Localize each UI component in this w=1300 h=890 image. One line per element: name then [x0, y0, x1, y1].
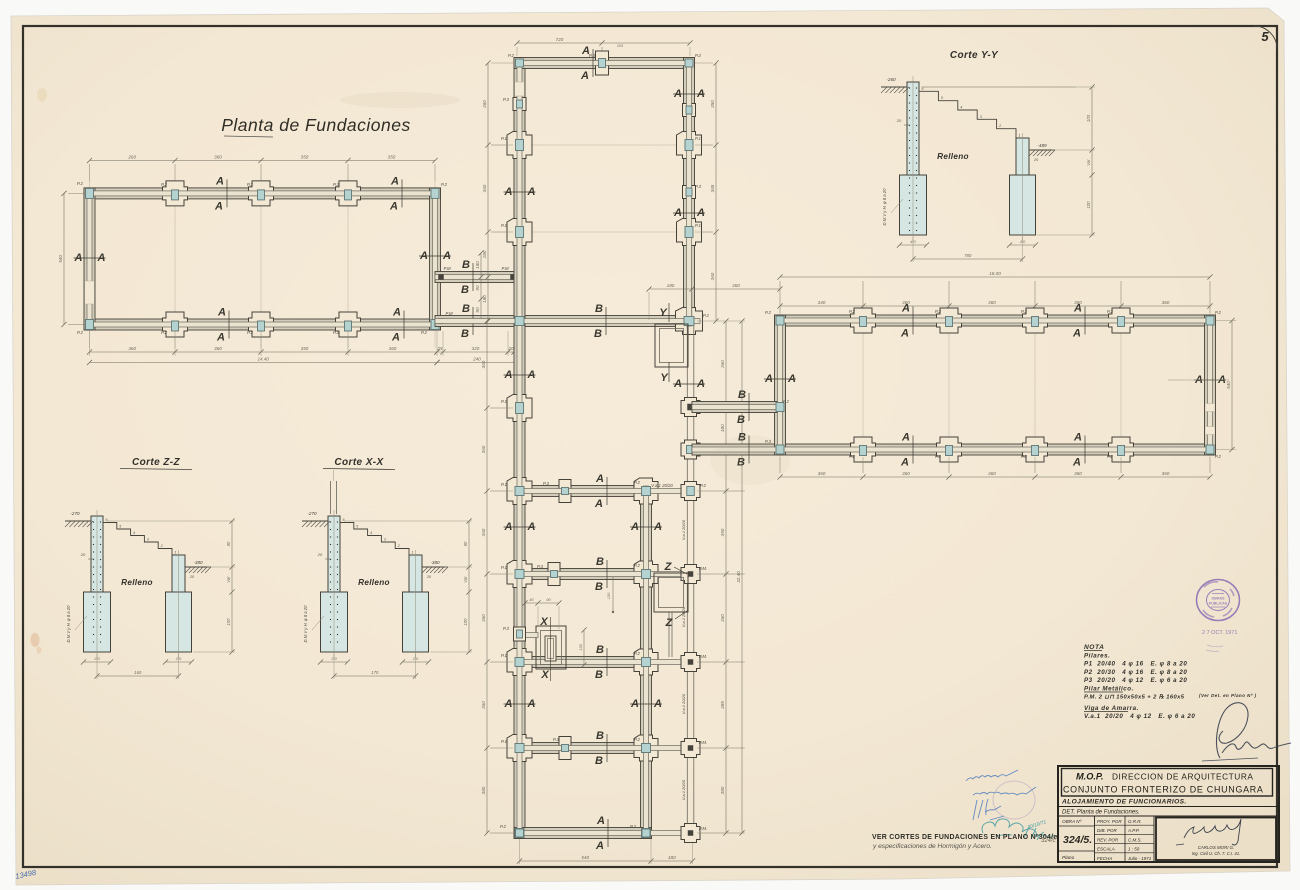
- svg-text:180: 180: [720, 424, 725, 432]
- svg-text:P.1: P.1: [501, 653, 508, 658]
- svg-text:V.a.1 20/20: V.a.1 20/20: [681, 519, 686, 540]
- svg-text:2: 2: [397, 544, 400, 548]
- svg-text:B: B: [595, 581, 603, 593]
- svg-text:B: B: [461, 284, 469, 296]
- svg-text:A: A: [504, 698, 513, 710]
- svg-text:P.M. 2 ⊔⊓ 150x50x5 + 2 ℞ 160x5: P.M. 2 ⊔⊓ 150x50x5 + 2 ℞ 160x5: [1084, 694, 1185, 701]
- svg-text:5: 5: [119, 525, 121, 529]
- svg-text:B: B: [596, 644, 604, 656]
- svg-text:350: 350: [720, 528, 725, 536]
- svg-text:B: B: [595, 755, 603, 767]
- svg-text:B: B: [596, 556, 604, 568]
- svg-text:P.2: P.2: [935, 309, 942, 314]
- svg-text:20: 20: [426, 575, 432, 579]
- svg-text:350: 350: [710, 100, 715, 108]
- svg-text:P.M: P.M: [443, 266, 451, 271]
- svg-text:320: 320: [472, 346, 480, 351]
- svg-text:P.1: P.1: [501, 136, 508, 141]
- svg-text:P.2: P.2: [333, 182, 340, 187]
- svg-text:540: 540: [581, 855, 589, 860]
- svg-text:385: 385: [720, 701, 725, 709]
- svg-text:A: A: [390, 175, 399, 187]
- svg-text:P.2: P.2: [630, 824, 637, 829]
- svg-text:DET. Planta de Fundaciones.: DET. Planta de Fundaciones.: [1062, 810, 1140, 816]
- svg-text:P.2: P.2: [161, 182, 168, 187]
- svg-text:20: 20: [1033, 158, 1039, 162]
- svg-text:B: B: [461, 328, 469, 340]
- svg-text:A: A: [1073, 303, 1082, 315]
- svg-text:P.M.: P.M.: [699, 826, 707, 831]
- svg-text:6: 6: [106, 518, 108, 522]
- svg-text:ESCALA: ESCALA: [1097, 847, 1115, 852]
- svg-text:360: 360: [818, 471, 826, 476]
- svg-text:FECHA: FECHA: [1097, 856, 1112, 861]
- svg-text:P.2: P.2: [700, 483, 707, 488]
- svg-text:P.M.: P.M.: [699, 566, 707, 571]
- svg-text:y especificaciones de Hormigón: y especificaciones de Hormigón y Acero.: [872, 843, 992, 850]
- svg-text:2: 2: [160, 544, 163, 548]
- svg-text:4: 4: [960, 106, 962, 110]
- svg-text:Plano: Plano: [1062, 855, 1075, 861]
- svg-text:P.3: P.3: [503, 97, 510, 102]
- svg-text:PROY. POR: PROY. POR: [1097, 819, 1122, 824]
- svg-text:P.2: P.2: [508, 53, 515, 58]
- svg-text:360: 360: [128, 346, 136, 351]
- svg-text:B: B: [462, 303, 470, 315]
- svg-text:P.M.: P.M.: [699, 740, 707, 745]
- svg-text:P.2: P.2: [77, 330, 84, 335]
- svg-text:360: 360: [481, 614, 486, 622]
- svg-text:A: A: [900, 328, 909, 340]
- svg-text:P.2: P.2: [247, 182, 254, 187]
- svg-text:P.2: P.2: [500, 824, 507, 829]
- svg-text:1: 1: [412, 551, 414, 555]
- svg-text:350: 350: [301, 154, 309, 159]
- svg-text:B: B: [595, 303, 603, 315]
- svg-text:REV. POR: REV. POR: [1097, 837, 1119, 842]
- svg-text:P.3: P.3: [537, 564, 544, 569]
- svg-text:14.40: 14.40: [257, 356, 269, 361]
- svg-text:P.2: P.2: [161, 330, 168, 335]
- svg-text:A: A: [419, 250, 428, 262]
- svg-text:A: A: [215, 175, 224, 187]
- svg-text:-260: -260: [886, 77, 896, 82]
- svg-text:P.2: P.2: [634, 480, 641, 485]
- svg-text:360: 360: [732, 283, 740, 288]
- svg-text:360: 360: [710, 272, 715, 280]
- svg-text:A: A: [504, 186, 513, 198]
- svg-text:120: 120: [606, 592, 611, 599]
- svg-text:B: B: [738, 389, 746, 401]
- svg-text:A: A: [527, 698, 536, 710]
- svg-text:Viga de Amarra.: Viga de Amarra.: [1084, 705, 1139, 712]
- svg-text:2 7 OCT. 1971: 2 7 OCT. 1971: [1202, 630, 1237, 636]
- svg-text:324/с: 324/с: [1041, 838, 1056, 844]
- svg-text:D.M.V y H. φ 8 a 20: D.M.V y H. φ 8 a 20: [66, 605, 71, 643]
- svg-text:P.1: P.1: [501, 399, 508, 404]
- svg-text:A: A: [900, 457, 909, 469]
- svg-text:A: A: [527, 186, 536, 198]
- svg-text:3: 3: [384, 538, 386, 542]
- svg-text:P.2: P.2: [77, 181, 84, 186]
- svg-text:90: 90: [475, 285, 480, 291]
- svg-text:324/5.: 324/5.: [1063, 834, 1092, 846]
- svg-text:2: 2: [998, 124, 1001, 128]
- svg-text:DIB. POR: DIB. POR: [1097, 828, 1118, 833]
- svg-text:20: 20: [80, 552, 86, 557]
- svg-text:A: A: [504, 521, 513, 533]
- svg-text:360: 360: [482, 184, 487, 192]
- svg-text:P.2: P.2: [333, 330, 340, 335]
- svg-text:780: 780: [964, 253, 972, 258]
- svg-text:A: A: [216, 332, 225, 344]
- svg-text:360: 360: [481, 360, 486, 368]
- svg-text:160: 160: [134, 670, 142, 675]
- svg-text:A: A: [74, 252, 83, 264]
- svg-text:A: A: [696, 88, 705, 100]
- svg-text:A: A: [97, 252, 106, 264]
- svg-text:360: 360: [482, 100, 487, 108]
- svg-text:B: B: [737, 414, 745, 426]
- svg-text:X: X: [540, 669, 549, 681]
- svg-text:20: 20: [189, 575, 195, 579]
- svg-text:P.2: P.2: [935, 454, 942, 459]
- svg-text:B: B: [462, 259, 470, 271]
- svg-text:Var: Var: [463, 576, 468, 583]
- svg-text:Var: Var: [226, 576, 231, 583]
- svg-text:18.00: 18.00: [989, 271, 1001, 276]
- svg-text:90: 90: [463, 541, 468, 546]
- svg-text:240: 240: [472, 356, 481, 361]
- svg-text:365: 365: [710, 184, 715, 192]
- svg-text:OBRA Nº: OBRA Nº: [1062, 819, 1081, 824]
- svg-text:A: A: [630, 698, 639, 710]
- svg-text:G.R.R.: G.R.R.: [1128, 819, 1142, 824]
- svg-text:A: A: [673, 207, 682, 219]
- svg-text:A: A: [527, 521, 536, 533]
- svg-text:D.M.V y H. φ 8 a 20: D.M.V y H. φ 8 a 20: [882, 188, 887, 226]
- svg-text:A: A: [653, 521, 662, 533]
- svg-text:A: A: [1072, 328, 1081, 340]
- svg-text:-270: -270: [307, 511, 317, 516]
- svg-text:P.2: P.2: [703, 313, 710, 318]
- svg-text:CARLOS MORI G.: CARLOS MORI G.: [1198, 845, 1235, 850]
- svg-text:32.40: 32.40: [736, 571, 741, 583]
- svg-text:360: 360: [988, 471, 996, 476]
- svg-text:Pilar Metálico.: Pilar Metálico.: [1084, 686, 1134, 693]
- svg-text:A: A: [580, 70, 589, 82]
- svg-text:Corte Y-Y: Corte Y-Y: [950, 50, 999, 61]
- svg-text:A: A: [696, 207, 705, 219]
- svg-text:OBRAS: OBRAS: [1212, 597, 1226, 601]
- svg-text:P.1: P.1: [695, 223, 702, 228]
- svg-text:V.a.1 20/20: V.a.1 20/20: [681, 779, 686, 800]
- svg-text:100: 100: [1086, 201, 1091, 209]
- svg-text:360: 360: [1162, 471, 1170, 476]
- svg-text:P.2: P.2: [849, 309, 856, 314]
- svg-text:Julio - 1971: Julio - 1971: [1127, 856, 1152, 861]
- svg-text:90: 90: [226, 541, 231, 546]
- svg-text:P.M.: P.M.: [699, 654, 707, 659]
- svg-text:A: A: [630, 521, 639, 533]
- svg-text:P.2: P.2: [849, 454, 856, 459]
- svg-text:A: A: [673, 378, 682, 390]
- svg-text:A: A: [581, 45, 590, 57]
- svg-text:P.1: P.1: [501, 739, 508, 744]
- svg-text:A: A: [217, 307, 226, 319]
- svg-text:180: 180: [475, 261, 480, 269]
- svg-text:360: 360: [481, 445, 486, 453]
- svg-text:1: 1: [175, 551, 177, 555]
- svg-text:Z: Z: [665, 617, 674, 629]
- svg-text:P.M: P.M: [445, 311, 453, 316]
- svg-text:A: A: [595, 840, 604, 852]
- svg-text:360: 360: [902, 471, 910, 476]
- svg-text:360: 360: [214, 154, 222, 159]
- svg-text:A.P.P.: A.P.P.: [1127, 828, 1140, 833]
- svg-text:Pilares.: Pilares.: [1084, 653, 1110, 660]
- svg-text:P.3: P.3: [503, 626, 510, 631]
- svg-text:Z: Z: [664, 561, 673, 573]
- svg-text:P2 20/30 4 φ 16 E. φ 8 a: P2 20/30 4 φ 16 E. φ 8 a 20: [1084, 669, 1187, 676]
- svg-text:D.M.V y H. φ 8 a 20: D.M.V y H. φ 8 a 20: [303, 605, 308, 643]
- svg-text:B: B: [596, 730, 604, 742]
- svg-text:3: 3: [147, 538, 149, 542]
- svg-text:A: A: [596, 815, 605, 827]
- svg-text:Corte Z-Z: Corte Z-Z: [132, 457, 181, 468]
- svg-text:B: B: [594, 328, 602, 340]
- svg-text:ALOJAMIENTO DE FUNCIONARIOS.: ALOJAMIENTO DE FUNCIONARIOS.: [1061, 799, 1187, 806]
- svg-text:X: X: [539, 616, 548, 628]
- svg-text:P.3: P.3: [553, 737, 560, 742]
- svg-text:A: A: [391, 332, 400, 344]
- svg-text:V.a.1 20/20: V.a.1 20/20: [651, 483, 673, 488]
- svg-text:Relleno: Relleno: [358, 578, 390, 587]
- svg-text:260: 260: [127, 154, 136, 159]
- svg-text:5: 5: [1261, 29, 1269, 44]
- svg-text:P.2: P.2: [765, 310, 772, 315]
- svg-text:P1 20/40 4 φ 16 E. φ 8 a: P1 20/40 4 φ 16 E. φ 8 a 20: [1084, 661, 1187, 668]
- svg-text:360: 360: [1074, 471, 1082, 476]
- svg-text:Var: Var: [1086, 159, 1091, 166]
- svg-text:A: A: [504, 369, 513, 381]
- svg-text:5: 5: [941, 96, 943, 100]
- svg-text:180: 180: [482, 250, 487, 258]
- svg-text:720: 720: [556, 37, 564, 42]
- svg-text:A: A: [653, 698, 662, 710]
- svg-text:340: 340: [818, 300, 826, 305]
- svg-text:Corte X-X: Corte X-X: [334, 457, 384, 468]
- svg-text:-270: -270: [70, 511, 80, 516]
- svg-text:P.2: P.2: [634, 563, 641, 568]
- svg-text:A: A: [442, 250, 451, 262]
- svg-text:P.2: P.2: [1107, 454, 1114, 459]
- svg-text:A: A: [696, 378, 705, 390]
- svg-text:180: 180: [482, 295, 487, 303]
- svg-text:A: A: [673, 88, 682, 100]
- svg-text:P.1: P.1: [695, 136, 702, 141]
- svg-text:20: 20: [317, 552, 323, 557]
- svg-text:380: 380: [481, 786, 486, 794]
- svg-text:Planta de Fundaciones: Planta de Fundaciones: [221, 115, 411, 135]
- svg-text:M.O.P.: M.O.P.: [1076, 772, 1103, 782]
- svg-text:P.2: P.2: [783, 399, 790, 404]
- svg-text:P.2: P.2: [1215, 310, 1222, 315]
- svg-text:C.M.S.: C.M.S.: [1128, 837, 1142, 842]
- svg-text:DIRECCION DE ARQUITECTURA: DIRECCION DE ARQUITECTURA: [1112, 772, 1253, 782]
- svg-text:A: A: [901, 432, 910, 444]
- svg-text:540: 540: [1226, 381, 1231, 389]
- svg-text:4: 4: [133, 531, 135, 535]
- svg-text:1 : 50: 1 : 50: [1128, 847, 1140, 852]
- svg-text:180: 180: [668, 855, 676, 860]
- svg-text:103: 103: [617, 44, 624, 48]
- svg-text:360: 360: [389, 346, 397, 351]
- svg-text:A: A: [787, 373, 796, 385]
- svg-text:P.3: P.3: [543, 481, 550, 486]
- svg-text:20: 20: [507, 346, 514, 351]
- svg-text:6: 6: [922, 87, 924, 91]
- svg-text:360: 360: [481, 528, 486, 536]
- svg-text:P.2: P.2: [1021, 454, 1028, 459]
- svg-text:P.2: P.2: [1107, 309, 1114, 314]
- svg-text:V.a.1 20/20: V.a.1 20/20: [681, 606, 686, 627]
- svg-text:V.a.1 20/20 4 φ 12 E. φ 6: V.a.1 20/20 4 φ 12 E. φ 6 a 20: [1084, 713, 1195, 720]
- svg-text:6: 6: [343, 518, 345, 522]
- svg-text:20: 20: [896, 118, 902, 123]
- svg-text:CONJUNTO FRONTERIZO DE CHUN: CONJUNTO FRONTERIZO DE CHUNGARA: [1063, 785, 1264, 795]
- svg-text:90: 90: [475, 307, 480, 313]
- svg-text:Relleno: Relleno: [121, 578, 153, 587]
- svg-text:100: 100: [463, 618, 468, 626]
- svg-text:-380: -380: [430, 560, 440, 565]
- svg-text:P.3: P.3: [589, 53, 596, 58]
- svg-text:P.1: P.1: [501, 565, 508, 570]
- svg-text:540: 540: [58, 255, 63, 263]
- svg-text:NOTA: NOTA: [1084, 644, 1104, 651]
- svg-text:103: 103: [1086, 114, 1091, 122]
- svg-text:4.0: 4.0: [1020, 239, 1026, 244]
- svg-text:360: 360: [1162, 300, 1170, 305]
- svg-text:P.1: P.1: [501, 482, 508, 487]
- svg-text:VER CORTES DE FUNDACIONES EN P: VER CORTES DE FUNDACIONES EN PLANO Nº304…: [872, 834, 1058, 841]
- svg-text:V.a.1 20/20: V.a.1 20/20: [681, 693, 686, 714]
- svg-text:P.2: P.2: [1215, 454, 1222, 459]
- svg-text:180: 180: [667, 283, 675, 288]
- svg-text:A: A: [901, 303, 910, 315]
- svg-text:P.2: P.2: [421, 330, 428, 335]
- svg-text:P.2: P.2: [247, 330, 254, 335]
- svg-text:A: A: [595, 473, 604, 485]
- svg-text:A: A: [1073, 432, 1082, 444]
- svg-text:-380: -380: [193, 560, 203, 565]
- svg-text:(Ver Det. en Plano Nº ): (Ver Det. en Plano Nº ): [1199, 693, 1257, 698]
- svg-text:Relleno: Relleno: [937, 152, 969, 161]
- svg-text:P.2: P.2: [634, 651, 641, 656]
- svg-text:100: 100: [226, 618, 231, 626]
- svg-text:5: 5: [356, 525, 358, 529]
- svg-text:P.3: P.3: [695, 184, 702, 189]
- svg-text:3: 3: [980, 115, 982, 119]
- svg-text:A: A: [527, 369, 536, 381]
- svg-text:P.1: P.1: [501, 223, 508, 228]
- svg-text:4.0: 4.0: [910, 239, 916, 244]
- svg-text:P.2: P.2: [1021, 309, 1028, 314]
- svg-text:360: 360: [988, 300, 996, 305]
- svg-text:P.2: P.2: [441, 182, 448, 187]
- svg-text:360: 360: [720, 360, 725, 368]
- svg-text:A: A: [214, 200, 223, 212]
- svg-text:380: 380: [720, 786, 725, 794]
- svg-text:PUBLICAS: PUBLICAS: [1209, 602, 1228, 606]
- svg-text:Ing. Civil U. Ch. 7. C.I. 41: Ing. Civil U. Ch. 7. C.I. 41.: [1192, 851, 1240, 856]
- svg-text:170: 170: [371, 670, 379, 675]
- svg-text:350: 350: [301, 346, 309, 351]
- svg-text:4: 4: [370, 531, 372, 535]
- svg-text:B: B: [595, 669, 603, 681]
- svg-text:A: A: [764, 373, 773, 385]
- svg-text:P.2: P.2: [634, 737, 641, 742]
- svg-text:350: 350: [388, 154, 396, 159]
- svg-text:A: A: [1072, 457, 1081, 469]
- svg-text:130: 130: [578, 643, 583, 650]
- svg-text:P.M: P.M: [501, 266, 509, 271]
- svg-text:P3 20/20 4 φ 12 E. φ 6 a: P3 20/20 4 φ 12 E. φ 6 a 20: [1084, 677, 1187, 684]
- svg-text:P.2: P.2: [695, 53, 702, 58]
- svg-text:360: 360: [720, 614, 725, 622]
- svg-text:25: 25: [436, 346, 443, 351]
- svg-text:A: A: [392, 307, 401, 319]
- svg-text:A: A: [594, 498, 603, 510]
- svg-text:A: A: [389, 200, 398, 212]
- svg-text:360: 360: [481, 701, 486, 709]
- svg-text:-489: -489: [1037, 143, 1047, 148]
- svg-text:360: 360: [214, 346, 222, 351]
- svg-text:1: 1: [1019, 134, 1021, 138]
